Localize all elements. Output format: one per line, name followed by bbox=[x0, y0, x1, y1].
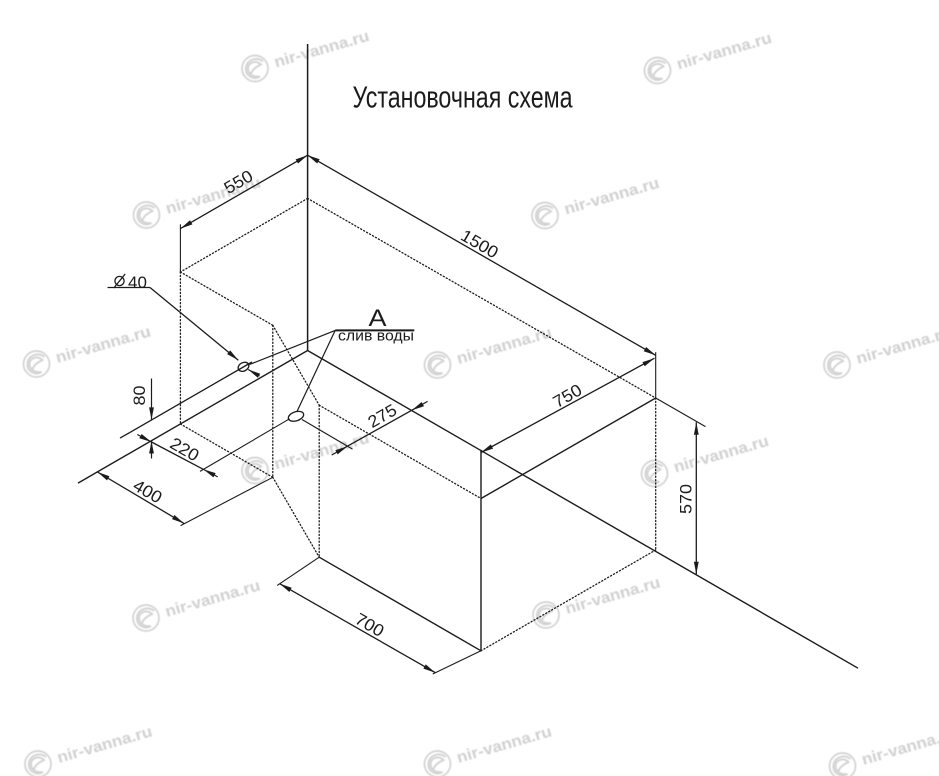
svg-text:570: 570 bbox=[676, 484, 695, 514]
svg-text:40: 40 bbox=[128, 273, 147, 292]
svg-text:слив воды: слив воды bbox=[338, 327, 414, 344]
svg-text:80: 80 bbox=[130, 386, 149, 406]
svg-text:Установочная схема: Установочная схема bbox=[353, 80, 574, 115]
